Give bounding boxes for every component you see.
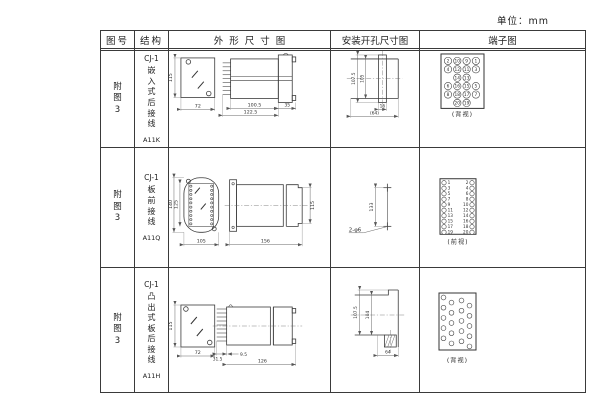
terminal-pin <box>442 186 446 190</box>
dim-label: 107.5 <box>353 306 359 319</box>
side-view: 31.5 9.5 126 <box>213 305 302 366</box>
outline-drawing-a11k: 115 72 100.5 <box>169 51 330 147</box>
terminal-pin-number: 11 <box>464 67 470 73</box>
terminal-pin-number: 6 <box>447 84 450 90</box>
terminal-pin <box>459 339 464 344</box>
terminal-pin-number: 3 <box>475 67 478 73</box>
cell-outline-3: 115 72 31.5 9.5 <box>169 268 331 392</box>
terminal-pin-number: 18 <box>455 92 461 98</box>
terminal-pin <box>467 344 472 349</box>
side-view: 100.5 35 122.5 <box>223 53 296 117</box>
view-caption: (背视) <box>452 110 473 118</box>
model-label: CJ-1 <box>144 173 159 182</box>
model-label: CJ-1 <box>144 54 159 63</box>
front-view: 115 72 <box>169 58 215 111</box>
header-fig: 图号 <box>101 31 135 49</box>
cell-structure-2: CJ-1 板前接线 A11Q <box>135 148 169 268</box>
terminal-pin <box>470 186 474 190</box>
terminal-pin <box>441 326 446 331</box>
terminal-pin <box>442 230 446 234</box>
terminal-pin-number: 11 <box>448 208 454 213</box>
terminal-pin <box>459 308 464 313</box>
terminal-pin-number: 17 <box>464 92 470 98</box>
terminal-pin <box>442 225 446 229</box>
type-code: A11Q <box>143 234 161 242</box>
terminal-drawing-back-view: (背视) <box>420 268 585 392</box>
cell-terminal-3: (背视) <box>420 268 585 392</box>
terminal-pin <box>470 230 474 234</box>
view-caption: (前视) <box>447 238 468 246</box>
dim-label: 16 <box>380 103 386 109</box>
terminal-pin-number: 16 <box>455 84 461 90</box>
cell-mount-3: 107.5 104 64 <box>331 268 420 392</box>
cell-outline-1: 115 72 100.5 <box>169 51 331 148</box>
outline-drawing-a11q: 140 125 105 156 <box>169 148 330 267</box>
terminal-pin <box>449 310 454 315</box>
dim-label: 115 <box>169 73 174 82</box>
dim-label: 133 <box>369 202 375 211</box>
type-code: A11K <box>143 136 160 144</box>
terminal-pin-number: 2 <box>466 180 469 185</box>
terminal-pin <box>441 295 446 300</box>
terminal-dot <box>211 202 213 204</box>
dim-label: 35 <box>284 103 290 109</box>
terminal-pin-number: 4 <box>447 67 450 73</box>
terminal-dot <box>211 210 213 212</box>
terminal-pin <box>442 192 446 196</box>
terminal-pin <box>442 219 446 223</box>
terminal-pin-number: 10 <box>455 59 461 65</box>
terminal-pin-number: 1 <box>448 180 451 185</box>
header-terminal: 端子图 <box>420 31 585 49</box>
spec-table: 图号 结构 外形尺寸图 安装开孔尺寸图 端子图 附图3 CJ-1 嵌入式后接线 … <box>100 30 586 393</box>
terminal-pin <box>442 181 446 185</box>
terminal-pin <box>442 208 446 212</box>
terminal-pin <box>459 319 464 324</box>
terminal-dot <box>211 185 213 187</box>
dim-label: 72 <box>195 350 201 356</box>
terminal-pin <box>470 203 474 207</box>
terminal-pin-number: 7 <box>448 197 451 202</box>
terminal-dot <box>211 223 213 225</box>
terminal-pin-number: 19 <box>464 101 470 107</box>
terminal-dot <box>190 206 192 208</box>
cell-mount-1: 107.5 105 16 (64) <box>331 51 420 148</box>
terminal-dot <box>190 223 192 225</box>
terminal-dot <box>211 214 213 216</box>
front-view: 140 125 105 <box>169 178 219 246</box>
terminal-pin-number: 14 <box>463 213 469 218</box>
hole-callout: 2-φ6 <box>349 227 362 233</box>
terminal-pin-number: 20 <box>455 101 461 107</box>
terminal-pin-number: 19 <box>448 230 454 235</box>
front-view: 115 72 <box>169 305 215 358</box>
dim-label: 9.5 <box>240 352 247 358</box>
terminal-pin-number: 12 <box>455 67 461 73</box>
terminal-pin <box>449 300 454 305</box>
cell-figure-1: 附图3 <box>101 51 135 148</box>
terminal-pin-number: 8 <box>447 92 450 98</box>
terminal-pin-number: 8 <box>466 197 469 202</box>
figure-number: 附图3 <box>113 190 122 224</box>
terminal-dot <box>190 185 192 187</box>
dim-label: 105 <box>359 74 365 83</box>
cell-structure-3: CJ-1 凸出式板后接线 A11H <box>135 268 169 392</box>
terminal-pin-number: 15 <box>464 84 470 90</box>
terminal-pin <box>441 316 446 321</box>
terminal-pin <box>470 181 474 185</box>
terminal-grid: 2109141211314136161558181772019 <box>444 57 479 106</box>
dim-label: 140 <box>169 200 174 209</box>
figure-number: 附图3 <box>113 82 122 116</box>
terminal-pin <box>467 303 472 308</box>
terminal-pin-number: 5 <box>475 84 478 90</box>
terminal-pin-number: 6 <box>466 191 469 196</box>
terminal-pin-number: 2 <box>447 59 450 65</box>
terminal-pin-number: 4 <box>466 186 469 191</box>
terminal-grid: 1357911131517192468101214161820 <box>442 180 474 235</box>
terminal-pin <box>459 329 464 334</box>
terminal-pin <box>449 341 454 346</box>
dim-label: 72 <box>195 103 201 109</box>
terminal-pin <box>442 214 446 218</box>
terminal-pin <box>442 203 446 207</box>
cell-figure-2: 附图3 <box>101 148 135 268</box>
dim-label: 107.5 <box>351 72 357 85</box>
terminal-pin <box>467 334 472 339</box>
terminal-pin-number: 3 <box>448 186 451 191</box>
terminal-pin-number: 1 <box>475 59 478 65</box>
structure-label: 凸出式板后接线 <box>147 292 155 366</box>
header-struct: 结构 <box>135 31 169 49</box>
terminal-dot <box>190 210 192 212</box>
terminal-pin-number: 13 <box>464 75 470 81</box>
terminal-pin <box>470 225 474 229</box>
terminal-dot <box>190 193 192 195</box>
cell-mount-2: 133 2-φ6 <box>331 148 420 268</box>
dim-label: 31.5 <box>213 356 223 362</box>
dim-label: 115 <box>169 321 174 330</box>
dim-label: 125 <box>174 200 180 209</box>
terminal-pin <box>470 192 474 196</box>
dim-label: 64 <box>385 350 391 356</box>
terminal-pin-number: 16 <box>463 219 469 224</box>
terminal-pin <box>470 219 474 223</box>
cell-terminal-1: 2109141211314136161558181772019 (背视) <box>420 51 585 148</box>
terminal-pin-number: 15 <box>448 219 454 224</box>
header-outline: 外形尺寸图 <box>169 31 331 49</box>
dim-label: 104 <box>365 311 371 320</box>
terminal-dot <box>211 219 213 221</box>
terminal-grid <box>441 295 472 349</box>
terminal-pin-number: 9 <box>448 202 451 207</box>
terminal-pin-number: 13 <box>448 213 454 218</box>
terminal-pin <box>470 208 474 212</box>
terminal-dot <box>190 189 192 191</box>
terminal-pin <box>441 305 446 310</box>
type-code: A11H <box>143 372 161 380</box>
terminal-pin-number: 9 <box>465 59 468 65</box>
terminal-dot <box>211 189 213 191</box>
cell-structure-1: CJ-1 嵌入式后接线 A11K <box>135 51 169 148</box>
terminal-drawing-front-view: 1357911131517192468101214161820 (前视) <box>420 148 585 267</box>
terminal-pin-number: 5 <box>448 191 451 196</box>
outline-drawing-a11h: 115 72 31.5 9.5 <box>169 268 330 392</box>
terminal-pin <box>441 336 446 341</box>
dim-label: 115 <box>310 201 316 210</box>
terminal-pin <box>467 313 472 318</box>
terminal-pin-number: 10 <box>463 202 469 207</box>
terminal-dot <box>211 198 213 200</box>
mount-drawing-a11q: 133 2-φ6 <box>331 148 419 267</box>
terminal-dot <box>190 214 192 216</box>
terminal-dot <box>190 219 192 221</box>
terminal-pin <box>459 298 464 303</box>
unit-label: 单位：mm <box>497 13 549 27</box>
terminal-pin <box>470 214 474 218</box>
dim-label: 100.5 <box>248 103 262 109</box>
terminal-dot <box>190 198 192 200</box>
dim-label: 122.5 <box>244 110 258 116</box>
cell-figure-3: 附图3 <box>101 268 135 392</box>
terminal-pin <box>442 197 446 201</box>
dim-label: 126 <box>258 359 267 365</box>
terminal-dot <box>211 206 213 208</box>
terminal-pin-number: 20 <box>463 230 469 235</box>
terminal-pin <box>449 331 454 336</box>
terminal-pin-number: 18 <box>463 224 469 229</box>
view-caption: (背视) <box>447 357 468 365</box>
terminal-pin <box>449 321 454 326</box>
terminal-dot <box>190 202 192 204</box>
header-mount: 安装开孔尺寸图 <box>331 31 420 49</box>
structure-label: 板前接线 <box>147 185 155 227</box>
cell-terminal-2: 1357911131517192468101214161820 (前视) <box>420 148 585 268</box>
cell-outline-2: 140 125 105 156 <box>169 148 331 268</box>
dim-label: 105 <box>197 239 206 245</box>
terminal-pin-number: 14 <box>455 75 461 81</box>
terminal-pin-number: 7 <box>475 92 478 98</box>
terminal-pin <box>470 197 474 201</box>
dim-label: 156 <box>261 239 270 245</box>
side-view: 156 115 <box>225 180 316 246</box>
figure-number: 附图3 <box>113 313 122 347</box>
terminal-pin-number: 17 <box>448 224 454 229</box>
terminal-drawing-back-view: 2109141211314136161558181772019 (背视) <box>420 51 585 147</box>
structure-label: 嵌入式后接线 <box>147 66 155 129</box>
mount-drawing-a11k: 107.5 105 16 (64) <box>331 51 419 147</box>
terminal-dot <box>211 193 213 195</box>
mount-drawing-a11h: 107.5 104 64 <box>331 268 419 392</box>
model-label: CJ-1 <box>144 280 159 289</box>
dim-label: (64) <box>370 110 379 116</box>
terminal-pin <box>467 324 472 329</box>
terminal-pin-number: 12 <box>463 208 469 213</box>
